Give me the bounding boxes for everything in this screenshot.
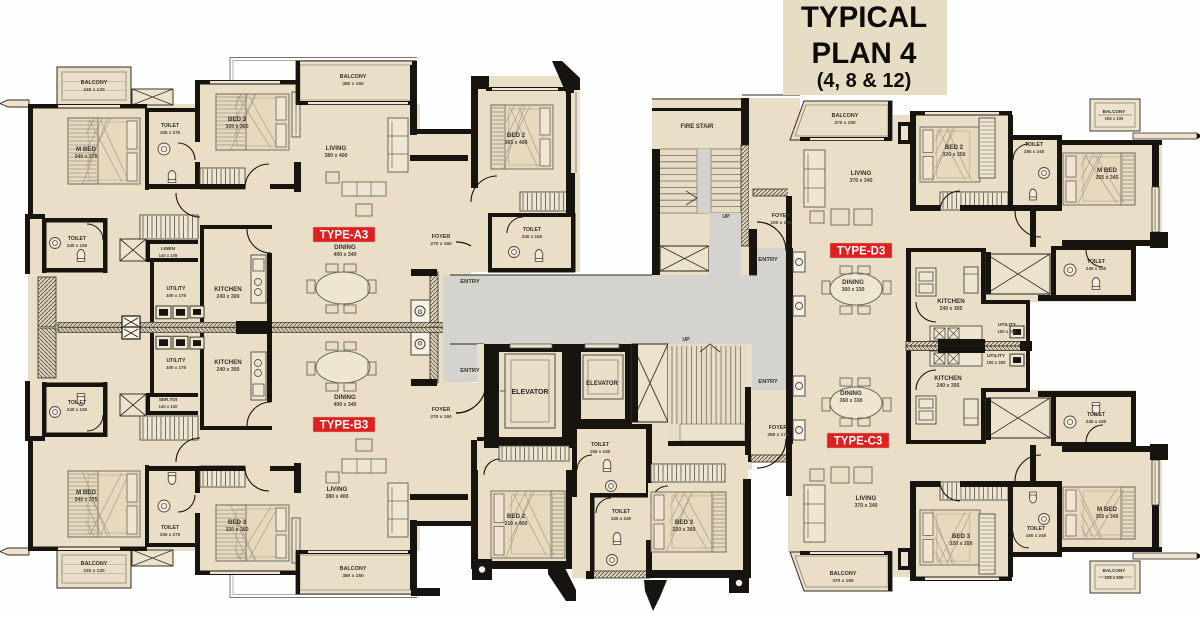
svg-text:UTILITY: UTILITY	[987, 353, 1006, 359]
svg-text:140 x 120: 140 x 120	[159, 404, 178, 409]
svg-text:240 x 150: 240 x 150	[67, 407, 88, 412]
svg-text:TOILET: TOILET	[161, 123, 180, 129]
svg-text:180 x 240: 180 x 240	[1024, 149, 1045, 154]
svg-text:FOYER: FOYER	[432, 234, 451, 240]
svg-text:FOYER: FOYER	[432, 407, 451, 413]
svg-text:105 x 100: 105 x 100	[1105, 575, 1124, 580]
svg-text:100 x 200: 100 x 200	[986, 360, 1006, 365]
svg-text:TYPICAL: TYPICAL	[801, 1, 927, 34]
svg-text:365 x 400: 365 x 400	[504, 140, 527, 146]
svg-text:ENTRY: ENTRY	[460, 279, 480, 285]
svg-text:FIRE STAIR: FIRE STAIR	[681, 124, 715, 130]
svg-text:FOYER: FOYER	[769, 425, 788, 431]
svg-text:140 x 105: 140 x 105	[159, 253, 178, 258]
svg-text:BED 2: BED 2	[507, 132, 526, 139]
svg-text:M BED: M BED	[1097, 506, 1117, 513]
svg-text:UP: UP	[682, 337, 690, 343]
svg-text:320 x 360: 320 x 360	[225, 124, 248, 130]
svg-text:210 x 400: 210 x 400	[504, 521, 527, 527]
svg-text:G: G	[418, 310, 423, 316]
svg-text:355 x 175: 355 x 175	[767, 432, 789, 438]
svg-text:320 x 360: 320 x 360	[672, 527, 695, 533]
svg-text:155 x 275: 155 x 275	[160, 130, 181, 135]
svg-text:240 x 150: 240 x 150	[1086, 266, 1107, 271]
svg-text:M BED: M BED	[76, 146, 96, 153]
svg-text:KITCHEN: KITCHEN	[214, 286, 242, 293]
svg-text:370 x 340: 370 x 340	[849, 178, 872, 184]
svg-text:DINING: DINING	[840, 390, 862, 397]
svg-text:155 x 240: 155 x 240	[611, 516, 632, 521]
svg-text:LIVING: LIVING	[326, 145, 347, 152]
svg-text:ENTRY: ENTRY	[758, 379, 778, 385]
svg-text:240 x 305: 240 x 305	[936, 383, 959, 389]
svg-text:400 x 340: 400 x 340	[333, 402, 356, 408]
svg-text:340 x 375: 340 x 375	[74, 154, 97, 160]
svg-text:TOILET: TOILET	[1027, 526, 1046, 532]
svg-text:240 x 300: 240 x 300	[216, 367, 239, 373]
svg-text:320 x 350: 320 x 350	[949, 541, 972, 547]
svg-text:ENTRY: ENTRY	[758, 257, 778, 263]
svg-text:ELEVATOR: ELEVATOR	[586, 381, 618, 387]
svg-text:240 x 150: 240 x 150	[67, 243, 88, 248]
svg-text:M BED: M BED	[1097, 167, 1117, 174]
svg-text:355 x 345: 355 x 345	[1095, 175, 1118, 181]
svg-text:BALCONY: BALCONY	[340, 74, 367, 80]
svg-text:320 x 360: 320 x 360	[225, 527, 248, 533]
svg-text:240 x 150: 240 x 150	[522, 234, 543, 239]
svg-text:370 x 150: 370 x 150	[834, 120, 856, 126]
svg-text:TOILET: TOILET	[523, 227, 542, 233]
svg-text:TYPE-D3: TYPE-D3	[837, 246, 886, 258]
svg-text:UTILITY: UTILITY	[167, 358, 187, 364]
svg-text:380 x 150: 380 x 150	[342, 81, 364, 87]
svg-text:155 x 275: 155 x 275	[160, 532, 181, 537]
svg-text:270 x 160: 270 x 160	[430, 241, 452, 247]
svg-text:BALCONY: BALCONY	[1103, 109, 1126, 114]
svg-text:ENTRY: ENTRY	[460, 368, 480, 374]
svg-text:M BED: M BED	[76, 489, 96, 496]
svg-text:TYPE-B3: TYPE-B3	[320, 420, 369, 432]
svg-text:LIVING: LIVING	[327, 486, 348, 493]
svg-text:FOYER: FOYER	[772, 213, 791, 219]
svg-text:100 x 175: 100 x 175	[166, 365, 187, 370]
svg-text:100 x 160: 100 x 160	[770, 220, 792, 226]
svg-text:DINING: DINING	[842, 279, 864, 286]
svg-text:400 x 340: 400 x 340	[333, 252, 356, 258]
svg-text:TOILET: TOILET	[612, 509, 631, 515]
svg-text:PLAN 4: PLAN 4	[812, 37, 918, 70]
svg-text:BED 3: BED 3	[228, 116, 247, 123]
svg-text:380 x 150: 380 x 150	[342, 573, 364, 579]
svg-text:105 x 100: 105 x 100	[1105, 116, 1124, 121]
svg-text:155 x 240: 155 x 240	[590, 449, 611, 454]
svg-text:320 x 350: 320 x 350	[942, 152, 965, 158]
svg-text:TOILET: TOILET	[1025, 142, 1044, 148]
svg-text:TOILET: TOILET	[161, 525, 180, 531]
svg-text:240 x 120: 240 x 120	[83, 568, 105, 574]
svg-text:ELEVATOR: ELEVATOR	[512, 389, 549, 396]
svg-text:BED 3: BED 3	[952, 533, 971, 540]
svg-text:DINING: DINING	[334, 394, 356, 401]
svg-text:LINEN: LINEN	[161, 246, 175, 251]
svg-text:270 x 160: 270 x 160	[430, 414, 452, 420]
svg-text:360 x 330: 360 x 330	[839, 398, 862, 404]
svg-text:TOILET: TOILET	[591, 442, 610, 448]
svg-text:BALCONY: BALCONY	[81, 80, 108, 86]
svg-text:UTILITY: UTILITY	[167, 286, 187, 292]
svg-text:240 x 305: 240 x 305	[939, 306, 962, 312]
svg-text:BALCONY: BALCONY	[81, 561, 108, 567]
svg-text:380 x 400: 380 x 400	[324, 153, 347, 159]
svg-text:240 x 150: 240 x 150	[1086, 419, 1107, 424]
svg-text:BED 3: BED 3	[675, 519, 694, 526]
svg-text:LIVING: LIVING	[851, 170, 872, 177]
svg-text:(4, 8 & 12): (4, 8 & 12)	[817, 70, 911, 92]
svg-text:355 x 345: 355 x 345	[1095, 514, 1118, 520]
svg-text:370 x 340: 370 x 340	[854, 503, 877, 509]
svg-text:TOILET: TOILET	[68, 236, 87, 242]
svg-text:100 x 200: 100 x 200	[997, 329, 1017, 334]
svg-text:100 x 175: 100 x 175	[166, 293, 187, 298]
svg-text:KITCHEN: KITCHEN	[934, 375, 962, 382]
svg-text:340 x 375: 340 x 375	[74, 497, 97, 503]
svg-text:UP: UP	[722, 214, 730, 220]
svg-text:DINING: DINING	[334, 244, 356, 251]
svg-text:TOILET: TOILET	[68, 400, 87, 406]
svg-text:370 x 150: 370 x 150	[832, 578, 854, 584]
svg-text:KITCHEN: KITCHEN	[214, 359, 242, 366]
svg-text:BED 3: BED 3	[228, 519, 247, 526]
svg-text:TOILET: TOILET	[1087, 412, 1106, 418]
svg-text:BALCONY: BALCONY	[1103, 568, 1126, 573]
svg-text:BED 2: BED 2	[945, 144, 964, 151]
svg-text:BALCONY: BALCONY	[830, 571, 857, 577]
svg-text:TOILET: TOILET	[1087, 259, 1106, 265]
svg-text:SER.TOI: SER.TOI	[159, 397, 177, 402]
svg-text:240 x 300: 240 x 300	[216, 294, 239, 300]
svg-text:UTILITY: UTILITY	[998, 322, 1017, 328]
svg-text:160 x 240: 160 x 240	[1026, 533, 1047, 538]
svg-text:BALCONY: BALCONY	[832, 113, 859, 119]
svg-text:KITCHEN: KITCHEN	[937, 298, 965, 305]
svg-text:TYPE-C3: TYPE-C3	[834, 436, 883, 448]
svg-text:TYPE-A3: TYPE-A3	[320, 230, 369, 242]
svg-text:360 x 330: 360 x 330	[841, 287, 864, 293]
svg-text:BALCONY: BALCONY	[340, 566, 367, 572]
svg-text:LIVING: LIVING	[856, 495, 877, 502]
svg-text:BED 2: BED 2	[507, 513, 526, 520]
svg-text:240 x 120: 240 x 120	[83, 87, 105, 93]
svg-text:380 x 400: 380 x 400	[325, 494, 348, 500]
